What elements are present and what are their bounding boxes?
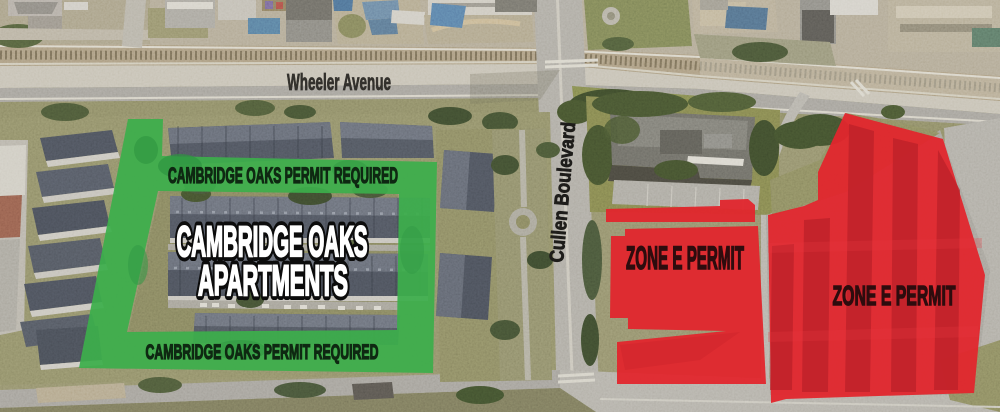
svg-text:CAMBRIDGE OAKS PERMIT REQUIRED: CAMBRIDGE OAKS PERMIT REQUIRED: [146, 341, 379, 364]
svg-text:ZONE E PERMIT: ZONE E PERMIT: [833, 280, 956, 311]
svg-text:Wheeler Avenue: Wheeler Avenue: [287, 69, 391, 95]
svg-text:APARTMENTS: APARTMENTS: [198, 257, 348, 305]
svg-text:ZONE E PERMIT: ZONE E PERMIT: [626, 240, 744, 276]
svg-text:CAMBRIDGE OAKS PERMIT REQUIRED: CAMBRIDGE OAKS PERMIT REQUIRED: [168, 163, 398, 188]
